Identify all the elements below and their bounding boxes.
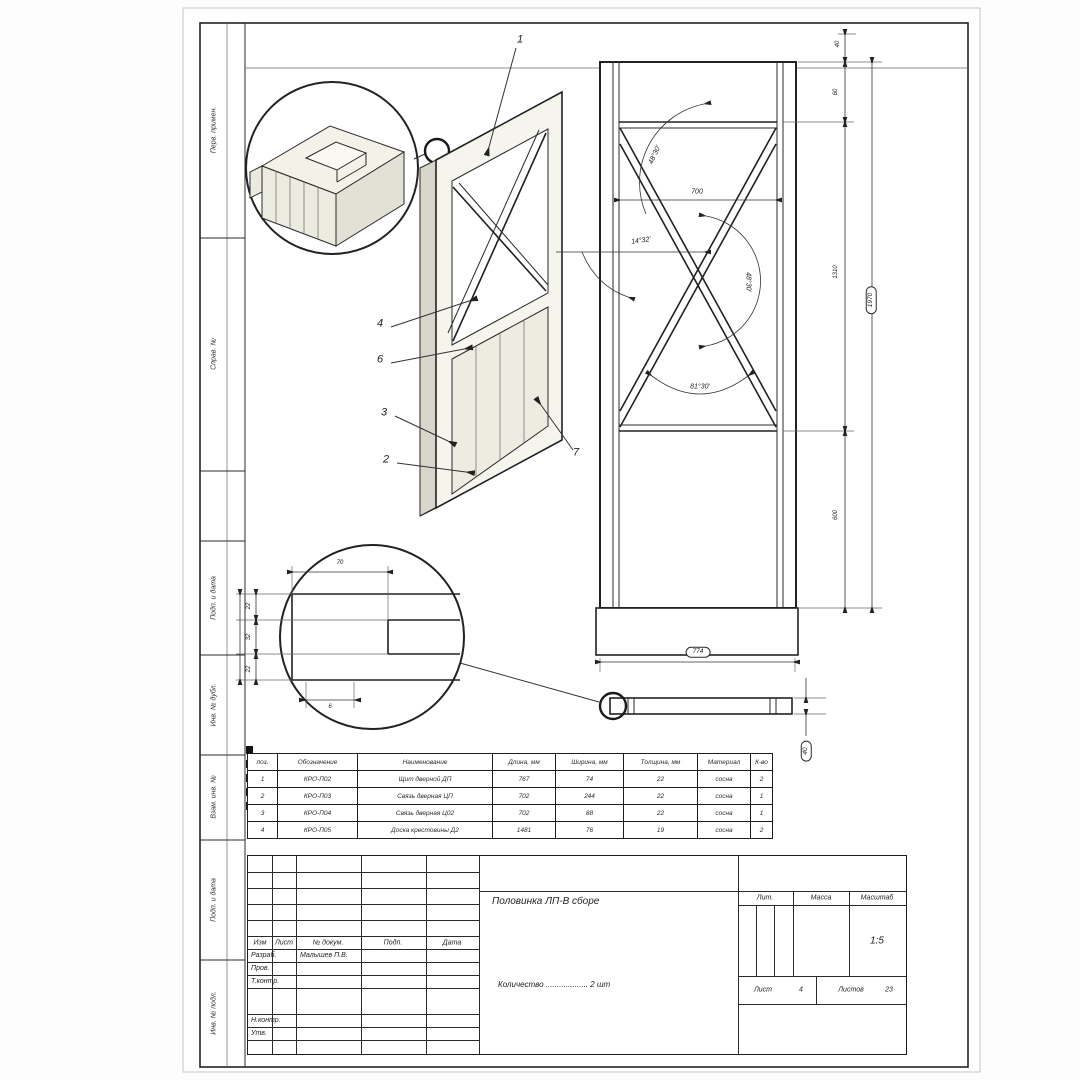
angle-top: 48°30' bbox=[648, 145, 663, 166]
angle-left: 14°32' bbox=[631, 236, 652, 246]
angle-right: 48°30' bbox=[745, 272, 752, 292]
dim-bottom-774: 774 bbox=[686, 647, 711, 658]
callout-2: 2 bbox=[383, 455, 389, 466]
dim-plank-40: 40 bbox=[801, 740, 812, 761]
angle-bottom: 81°30' bbox=[690, 384, 710, 391]
drawing-sheet: Перв. примен. Справ. № Подп. и дата Инв.… bbox=[0, 0, 1080, 1080]
dim-right-60: 60 bbox=[833, 89, 839, 96]
callout-3: 3 bbox=[381, 408, 387, 419]
dim-right-1310: 1310 bbox=[833, 265, 839, 278]
dim-right-600: 600 bbox=[833, 510, 839, 520]
detail-b-dim-22a: 22 bbox=[246, 603, 252, 610]
detail-b-dim-70: 70 bbox=[337, 560, 344, 566]
detail-b-dim-6: 6 bbox=[328, 704, 331, 710]
dimension-annotations: 14632770048°30'14°32'48°30'81°30'4060131… bbox=[0, 0, 1080, 1080]
callout-1: 1 bbox=[517, 35, 523, 46]
dim-top-40: 40 bbox=[835, 41, 841, 48]
callout-4: 4 bbox=[377, 319, 383, 330]
detail-b-dim-32: 32 bbox=[246, 634, 252, 641]
dim-height-1970: 1970 bbox=[866, 286, 877, 314]
dim-width-700: 700 bbox=[691, 189, 703, 196]
callout-7: 7 bbox=[573, 448, 579, 459]
callout-6: 6 bbox=[377, 355, 383, 366]
detail-b-dim-22b: 22 bbox=[246, 666, 252, 673]
